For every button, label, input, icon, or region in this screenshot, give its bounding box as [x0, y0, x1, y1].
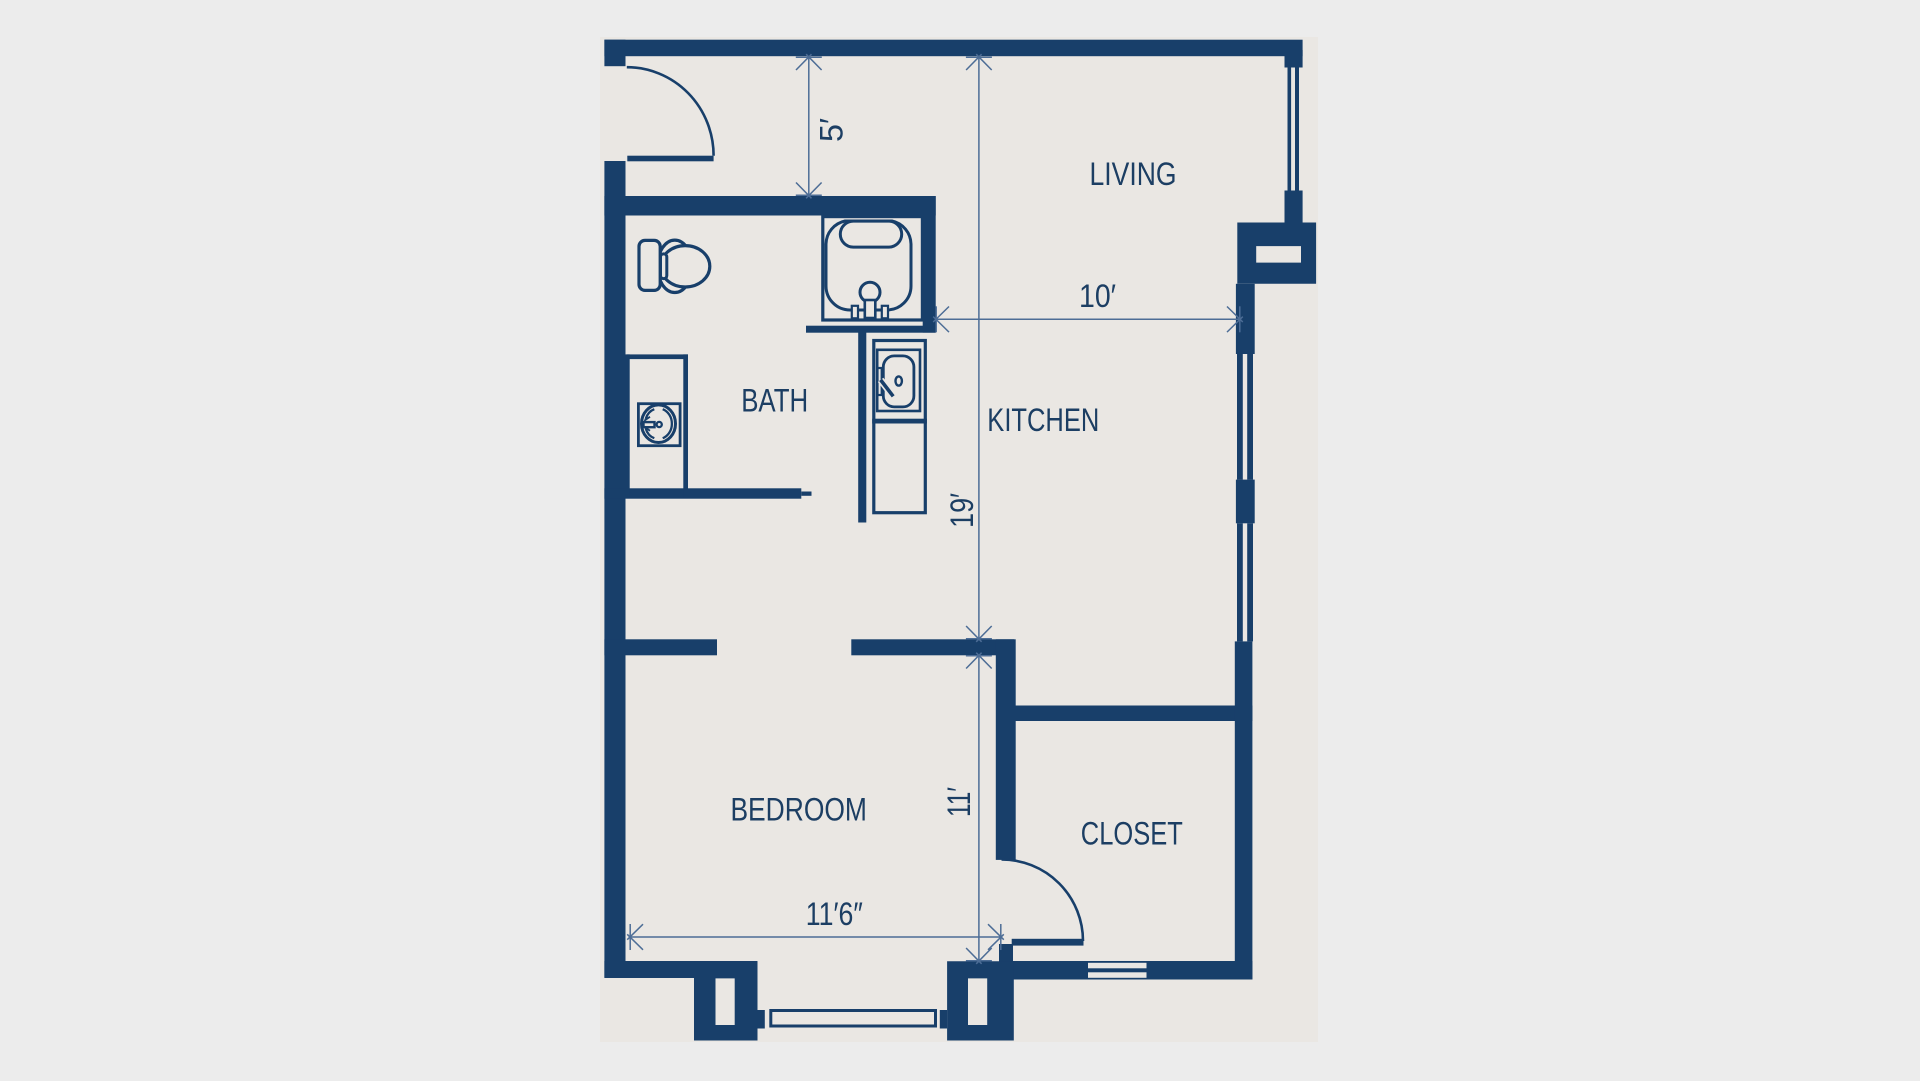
svg-text:BATH: BATH	[741, 383, 808, 419]
svg-text:11′: 11′	[941, 787, 977, 817]
svg-text:BEDROOM: BEDROOM	[730, 791, 867, 827]
svg-text:19′: 19′	[944, 493, 980, 528]
svg-text:5′: 5′	[814, 118, 850, 142]
svg-text:LIVING: LIVING	[1090, 156, 1177, 192]
svg-text:11′6″: 11′6″	[806, 896, 863, 932]
svg-text:10′: 10′	[1079, 278, 1116, 314]
svg-text:CLOSET: CLOSET	[1081, 815, 1183, 851]
svg-text:KITCHEN: KITCHEN	[987, 402, 1099, 438]
